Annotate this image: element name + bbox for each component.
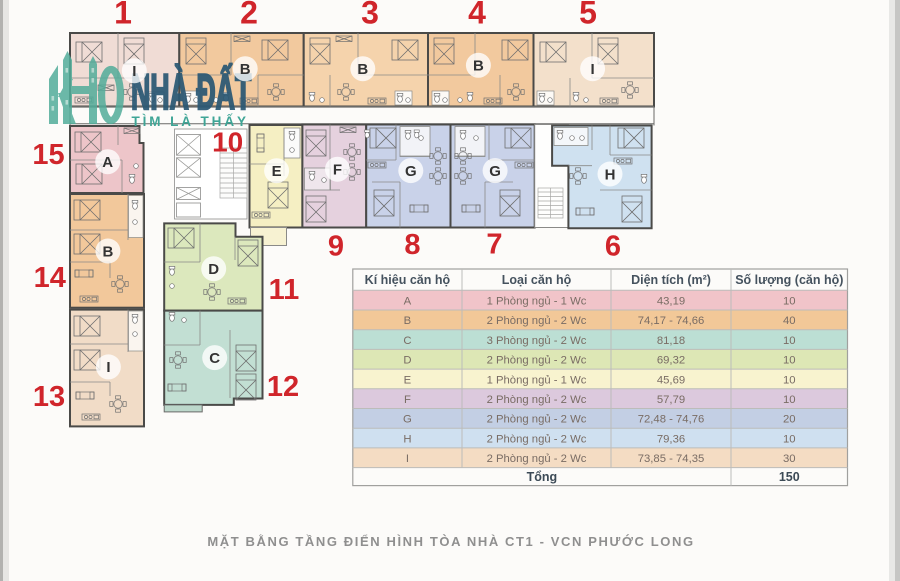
svg-text:G: G xyxy=(403,414,412,426)
svg-text:15: 15 xyxy=(32,139,64,171)
svg-text:I: I xyxy=(106,359,110,376)
svg-text:Kí hiệu căn hộ: Kí hiệu căn hộ xyxy=(365,273,451,287)
svg-text:2 Phòng ngủ - 2 Wc: 2 Phòng ngủ - 2 Wc xyxy=(487,433,587,445)
svg-text:30: 30 xyxy=(783,453,796,465)
svg-text:69,32: 69,32 xyxy=(657,355,685,367)
svg-text:H: H xyxy=(605,166,616,183)
svg-text:10: 10 xyxy=(783,335,796,347)
svg-text:A: A xyxy=(404,296,412,308)
svg-text:F: F xyxy=(333,162,342,179)
svg-text:Diện tích (m²): Diện tích (m²) xyxy=(631,273,711,287)
svg-text:E: E xyxy=(404,374,412,386)
svg-text:2 Phòng ngủ - 2 Wc: 2 Phòng ngủ - 2 Wc xyxy=(487,453,587,465)
svg-text:B: B xyxy=(102,243,113,260)
svg-text:E: E xyxy=(272,163,282,180)
svg-text:3: 3 xyxy=(361,0,379,31)
svg-text:I: I xyxy=(406,453,409,465)
svg-text:74,17 - 74,66: 74,17 - 74,66 xyxy=(638,315,705,327)
svg-text:4: 4 xyxy=(468,0,486,31)
svg-text:11: 11 xyxy=(269,274,300,306)
svg-text:14: 14 xyxy=(34,262,66,294)
svg-text:G: G xyxy=(489,163,501,180)
svg-text:20: 20 xyxy=(783,414,796,426)
svg-text:1 Phòng ngủ - 1 Wc: 1 Phòng ngủ - 1 Wc xyxy=(487,374,587,386)
svg-text:3 Phòng ngủ - 2 Wc: 3 Phòng ngủ - 2 Wc xyxy=(487,335,587,347)
svg-text:10: 10 xyxy=(783,296,796,308)
svg-text:B: B xyxy=(404,315,412,327)
svg-text:40: 40 xyxy=(783,315,796,327)
svg-text:79,36: 79,36 xyxy=(657,433,685,445)
svg-text:I: I xyxy=(132,63,136,80)
svg-text:43,19: 43,19 xyxy=(657,296,685,308)
svg-text:2 Phòng ngủ - 2 Wc: 2 Phòng ngủ - 2 Wc xyxy=(487,394,587,406)
svg-text:A: A xyxy=(102,154,113,171)
svg-text:2: 2 xyxy=(240,0,258,31)
svg-text:10: 10 xyxy=(783,433,796,445)
svg-text:13: 13 xyxy=(33,381,65,413)
svg-text:TÌM LÀ THẤY: TÌM LÀ THẤY xyxy=(132,114,249,129)
svg-text:C: C xyxy=(209,350,220,367)
svg-text:81,18: 81,18 xyxy=(657,335,685,347)
svg-text:73,85 - 74,35: 73,85 - 74,35 xyxy=(638,453,705,465)
svg-text:I: I xyxy=(591,61,595,78)
svg-text:5: 5 xyxy=(579,0,597,31)
svg-text:MẶT BẰNG TẦNG ĐIỂN HÌNH TÒA NH: MẶT BẰNG TẦNG ĐIỂN HÌNH TÒA NHÀ CT1 - VC… xyxy=(207,534,694,549)
svg-text:6: 6 xyxy=(605,231,621,263)
svg-text:B: B xyxy=(357,61,368,78)
svg-text:C: C xyxy=(403,335,411,347)
svg-text:Loại căn hộ: Loại căn hộ xyxy=(502,273,572,287)
svg-text:B: B xyxy=(473,58,484,75)
svg-text:2 Phòng ngủ - 2 Wc: 2 Phòng ngủ - 2 Wc xyxy=(487,315,587,327)
svg-text:150: 150 xyxy=(779,470,800,484)
svg-text:10: 10 xyxy=(212,127,243,158)
svg-text:45,69: 45,69 xyxy=(657,374,685,386)
svg-text:72,48 - 74,76: 72,48 - 74,76 xyxy=(638,414,705,426)
svg-text:9: 9 xyxy=(328,231,344,263)
svg-text:D: D xyxy=(403,355,411,367)
svg-text:Số lượng (căn hộ): Số lượng (căn hộ) xyxy=(735,273,843,287)
svg-text:D: D xyxy=(208,261,219,278)
svg-text:B: B xyxy=(240,61,251,78)
svg-text:12: 12 xyxy=(267,371,299,403)
svg-text:Tổng: Tổng xyxy=(527,470,558,484)
svg-text:1 Phòng ngủ - 1 Wc: 1 Phòng ngủ - 1 Wc xyxy=(487,296,587,308)
svg-text:10: 10 xyxy=(783,374,796,386)
svg-text:G: G xyxy=(405,163,417,180)
svg-text:2 Phòng ngủ - 2 Wc: 2 Phòng ngủ - 2 Wc xyxy=(487,355,587,367)
svg-text:57,79: 57,79 xyxy=(657,394,685,406)
svg-text:1: 1 xyxy=(114,0,132,31)
svg-text:F: F xyxy=(404,394,411,406)
svg-text:H: H xyxy=(403,433,411,445)
svg-text:10: 10 xyxy=(783,355,796,367)
svg-text:8: 8 xyxy=(404,229,420,261)
svg-text:7: 7 xyxy=(486,229,502,261)
svg-text:10: 10 xyxy=(783,394,796,406)
svg-text:2 Phòng ngủ - 2 Wc: 2 Phòng ngủ - 2 Wc xyxy=(487,414,587,426)
